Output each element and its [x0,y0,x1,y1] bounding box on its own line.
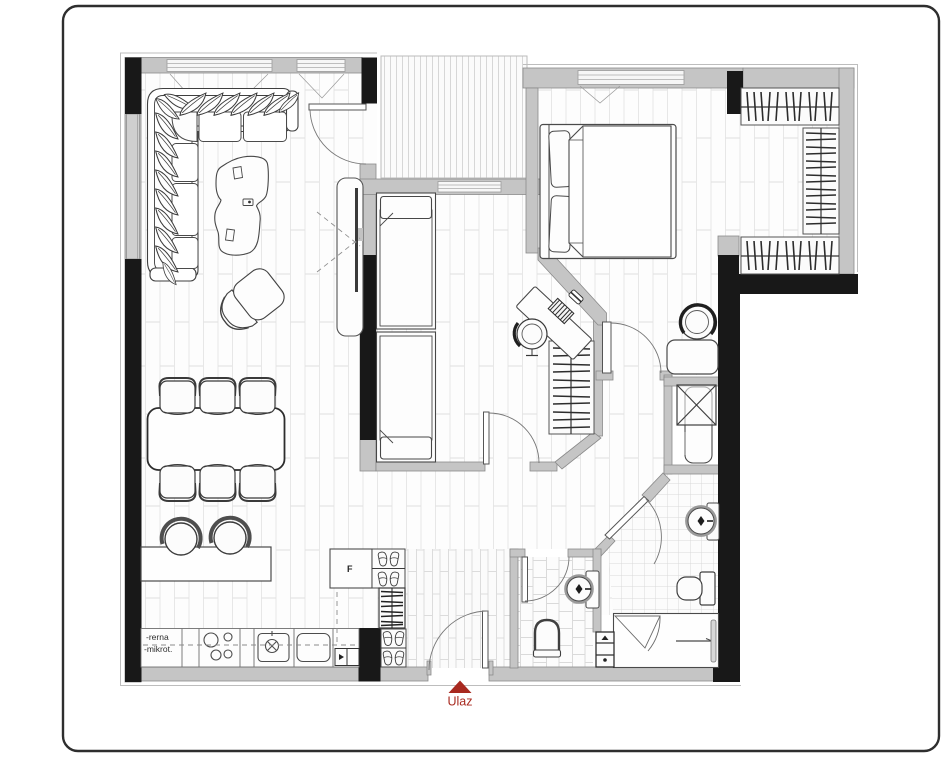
svg-text:Ulaz: Ulaz [447,695,472,709]
svg-text:F: F [347,564,353,574]
svg-text:-rerna: -rerna [146,632,169,642]
svg-text:-mikrot.: -mikrot. [144,644,172,654]
